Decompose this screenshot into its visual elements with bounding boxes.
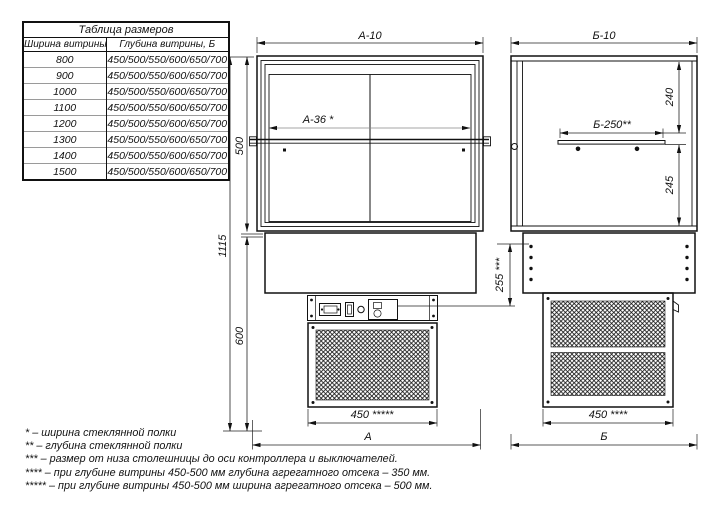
width-value: 1100 <box>23 100 106 116</box>
side-view <box>511 56 697 407</box>
depth-options: 450/500/550/600/650/700 <box>106 164 229 181</box>
width-value: 1500 <box>23 164 106 181</box>
front-view <box>250 56 516 407</box>
width-value: 1300 <box>23 132 106 148</box>
dim-450-front-label: 450 ***** <box>351 409 395 421</box>
side-ventilation-grille <box>543 293 679 407</box>
size-table: Таблица размеров Ширина витрины, А Глуби… <box>22 21 230 181</box>
table-row: 1100450/500/550/600/650/700 <box>23 100 229 116</box>
footnote-line: **** – при глубине витрины 450-500 мм гл… <box>25 467 432 480</box>
footnote-line: *** – размер от низа столешницы до оси к… <box>25 453 432 466</box>
width-value: 1400 <box>23 148 106 164</box>
side-countertop-base <box>523 233 695 293</box>
dim-1115-label: 1115 <box>217 234 229 258</box>
footnote-line: ***** – при глубине витрины 450-500 мм ш… <box>25 480 432 493</box>
dim-245-label: 245 <box>664 175 676 195</box>
dim-240-label: 240 <box>664 87 676 107</box>
front-ventilation-grille <box>308 323 437 407</box>
table-row: 1000450/500/550/600/650/700 <box>23 84 229 100</box>
column-header-depth: Глубина витрины, Б <box>106 38 229 52</box>
width-value: 1200 <box>23 116 106 132</box>
side-glass-shelf <box>558 141 665 152</box>
footnotes: * – ширина стеклянной полки ** – глубина… <box>25 427 432 493</box>
front-countertop-base <box>265 233 476 293</box>
width-value: 900 <box>23 68 106 84</box>
depth-options: 450/500/550/600/650/700 <box>106 100 229 116</box>
technical-drawing-page: А-10 А-36 * 500 1115 600 450 ***** А <box>0 0 720 517</box>
side-glass-case <box>511 56 697 231</box>
dim-255-label: 255 *** <box>494 257 506 293</box>
shelf-support-dot <box>576 147 581 152</box>
temperature-controller <box>320 304 341 316</box>
size-table-header-row: Ширина витрины, А Глубина витрины, Б <box>23 38 229 52</box>
depth-options: 450/500/550/600/650/700 <box>106 68 229 84</box>
footnote-line: ** – глубина стеклянной полки <box>25 440 432 453</box>
width-value: 1000 <box>23 84 106 100</box>
dim-b-label: Б <box>600 431 607 443</box>
size-table-title: Таблица размеров <box>23 22 229 38</box>
depth-options: 450/500/550/600/650/700 <box>106 84 229 100</box>
depth-options: 450/500/550/600/650/700 <box>106 132 229 148</box>
control-panel <box>308 296 516 321</box>
shelf-support-dot <box>283 149 286 152</box>
shelf-support-dot <box>462 149 465 152</box>
dim-a10-label: А-10 <box>357 30 382 42</box>
dim-450-side-label: 450 **** <box>589 409 628 421</box>
grille-latch <box>673 301 679 312</box>
width-value: 800 <box>23 52 106 68</box>
dim-500-label: 500 <box>234 136 246 155</box>
socket-plate <box>369 300 398 320</box>
footnote-line: * – ширина стеклянной полки <box>25 427 432 440</box>
table-row: 1200450/500/550/600/650/700 <box>23 116 229 132</box>
column-header-width: Ширина витрины, А <box>23 38 106 52</box>
table-row: 800450/500/550/600/650/700 <box>23 52 229 68</box>
table-row: 1500450/500/550/600/650/700 <box>23 164 229 181</box>
shelf-support-dot <box>635 147 640 152</box>
table-row: 1300450/500/550/600/650/700 <box>23 132 229 148</box>
indicator-lamp <box>358 306 364 312</box>
power-switch <box>346 303 354 317</box>
dim-b10-label: Б-10 <box>592 30 616 42</box>
dim-b250-label: Б-250** <box>593 119 631 131</box>
depth-options: 450/500/550/600/650/700 <box>106 116 229 132</box>
depth-options: 450/500/550/600/650/700 <box>106 52 229 68</box>
dim-a36-label: А-36 * <box>302 114 334 126</box>
table-row: 1400450/500/550/600/650/700 <box>23 148 229 164</box>
table-row: 900450/500/550/600/650/700 <box>23 68 229 84</box>
depth-options: 450/500/550/600/650/700 <box>106 148 229 164</box>
dim-600-label: 600 <box>234 326 246 345</box>
